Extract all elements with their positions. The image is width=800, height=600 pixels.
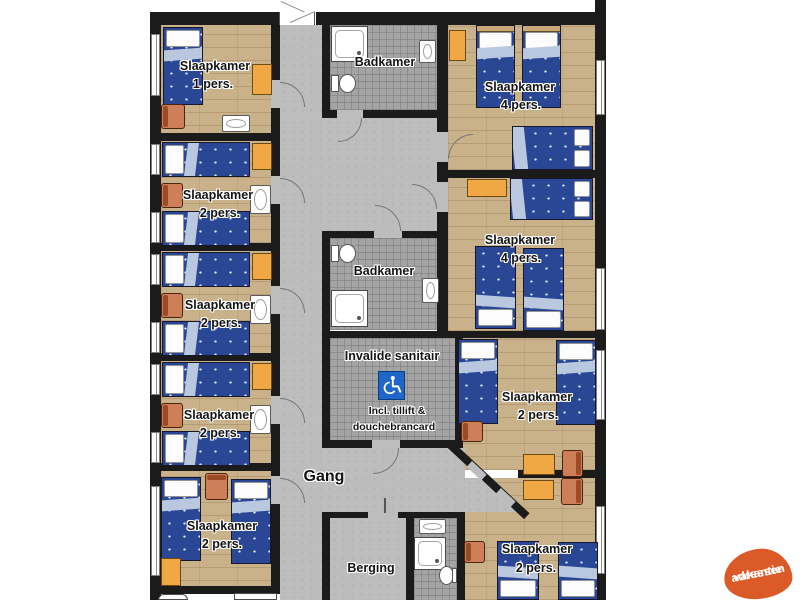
toilet-bowl (158, 594, 188, 600)
single-bed (162, 252, 250, 287)
blanket-fold (162, 498, 200, 512)
nightstand (252, 143, 272, 170)
toilet-bowl (339, 74, 356, 93)
pillow (574, 201, 590, 217)
nightstand (161, 558, 181, 586)
room-label: 2 pers. (202, 538, 242, 551)
room-label: 2 pers. (200, 427, 240, 440)
wall (150, 133, 280, 141)
chair (161, 403, 183, 428)
toilet-tank (331, 245, 339, 262)
toilet-tank (331, 75, 339, 92)
window (151, 322, 160, 353)
desk (467, 179, 507, 197)
hallway-bottom-strip (280, 512, 322, 600)
door-opening (271, 396, 280, 424)
logo-text-line2: adressen (730, 563, 786, 585)
wall (316, 12, 606, 25)
nightstand (252, 64, 272, 95)
blanket-fold (184, 143, 199, 176)
blanket-fold (476, 295, 515, 309)
wall (437, 331, 606, 338)
single-bed (458, 339, 498, 424)
door-opening (374, 231, 402, 238)
window (151, 34, 160, 96)
door-opening (437, 132, 448, 162)
window (151, 254, 160, 285)
single-bed (476, 25, 515, 108)
room-label: 2 pers. (516, 562, 556, 575)
door-opening (337, 110, 363, 118)
chair (461, 421, 483, 442)
blanket-fold (524, 297, 563, 311)
table (523, 480, 554, 500)
sink (419, 40, 436, 63)
window (151, 144, 160, 175)
window (151, 432, 160, 463)
wall (150, 12, 278, 25)
pillow (165, 145, 184, 174)
door-opening (271, 286, 280, 314)
pillow (561, 580, 595, 597)
room-note: Incl. tillift & (369, 406, 426, 417)
room-label: 1 pers. (193, 78, 233, 91)
wall (322, 231, 330, 448)
room-label: Invalide sanitair (345, 350, 439, 363)
room-label: Badkamer (354, 265, 414, 278)
chair (561, 478, 583, 505)
sink (222, 115, 250, 132)
blanket-fold (232, 500, 270, 514)
chair (161, 104, 185, 129)
chair (562, 450, 583, 477)
door-opening (271, 80, 280, 108)
room-note: douchebrancard (353, 422, 435, 433)
pillow (164, 480, 198, 497)
room-label: 4 pers. (501, 99, 541, 112)
pillow (165, 365, 184, 394)
single-bed (162, 142, 250, 177)
wall (406, 512, 414, 600)
nightstand (252, 253, 272, 280)
wall (322, 25, 330, 118)
blanket-fold (510, 179, 526, 219)
shower (234, 593, 277, 600)
sink (250, 185, 271, 214)
pillow (574, 129, 590, 146)
single-bed (556, 340, 596, 425)
pillow (166, 30, 200, 47)
room-label: 4 pers. (501, 252, 541, 265)
room-label: Slaapkamer (502, 543, 572, 556)
pillow (574, 181, 590, 197)
room-label: Slaapkamer (180, 60, 250, 73)
window (596, 268, 605, 330)
room-label: Slaapkamer (185, 299, 255, 312)
room-label: 2 pers. (201, 317, 241, 330)
wall (437, 170, 606, 178)
pillow (500, 580, 536, 597)
window (151, 486, 160, 576)
door-opening (437, 182, 448, 212)
pillow (478, 309, 513, 326)
pillow (574, 150, 590, 167)
blanket-fold (184, 432, 199, 465)
storage-label: Berging (347, 562, 394, 575)
blanket-fold (559, 566, 597, 580)
chair (205, 473, 228, 500)
room-label: Slaapkamer (187, 520, 257, 533)
toilet-tank (452, 568, 457, 583)
vakantieadressen-logo: vakantie adressen (722, 546, 794, 600)
blanket-fold (184, 363, 199, 396)
room-label: 2 pers. (200, 207, 240, 220)
blanket-fold (184, 212, 199, 245)
blanket-fold (512, 127, 528, 169)
blanket-fold (477, 46, 514, 60)
door-opening (368, 512, 398, 518)
window (151, 364, 160, 395)
sink (422, 278, 439, 303)
room-label: Slaapkamer (485, 234, 555, 247)
single-bed (522, 25, 561, 108)
chair (464, 541, 485, 563)
chair (161, 183, 183, 208)
toilet-bowl (339, 244, 356, 263)
shower (414, 537, 446, 570)
door-opening (271, 176, 280, 204)
room-label: 2 pers. (518, 409, 558, 422)
room-label: Slaapkamer (485, 81, 555, 94)
double-bed (510, 178, 593, 220)
wall (322, 512, 330, 600)
window (151, 212, 160, 243)
door-opening (372, 440, 400, 448)
nightstand (252, 363, 272, 390)
shower (331, 290, 368, 327)
pillow (526, 311, 561, 328)
pillow (559, 343, 593, 360)
pillow (165, 255, 184, 284)
blanket-fold (184, 322, 199, 355)
room-label: Slaapkamer (183, 189, 253, 202)
blanket-fold (557, 361, 595, 375)
blanket-fold (523, 46, 560, 60)
floorplan: Slaapkamer 1 pers. Slaapkamer 2 pers. Sl… (0, 0, 800, 600)
double-bed (512, 126, 593, 170)
door-opening (271, 476, 280, 504)
table (523, 454, 555, 475)
hallway-wide-upper (280, 118, 437, 231)
blanket-fold (184, 253, 199, 286)
room-label: Slaapkamer (502, 391, 572, 404)
room-label: Slaapkamer (184, 409, 254, 422)
blanket-fold (459, 360, 497, 374)
window (596, 60, 605, 115)
wheelchair-icon (378, 371, 405, 400)
nightstand (449, 30, 466, 61)
chair (161, 293, 183, 318)
hallway-label: Gang (304, 469, 345, 485)
sink (419, 519, 446, 534)
entrance-door-swing (281, 1, 305, 12)
door-leaf (384, 498, 386, 513)
room-label: Badkamer (355, 56, 415, 69)
pillow (234, 482, 268, 499)
pillow (165, 214, 184, 243)
storage-floor-area (330, 518, 406, 600)
pillow (461, 342, 495, 359)
pillow (165, 434, 184, 463)
pillow (165, 324, 184, 353)
single-bed (162, 362, 250, 397)
window (596, 350, 605, 420)
